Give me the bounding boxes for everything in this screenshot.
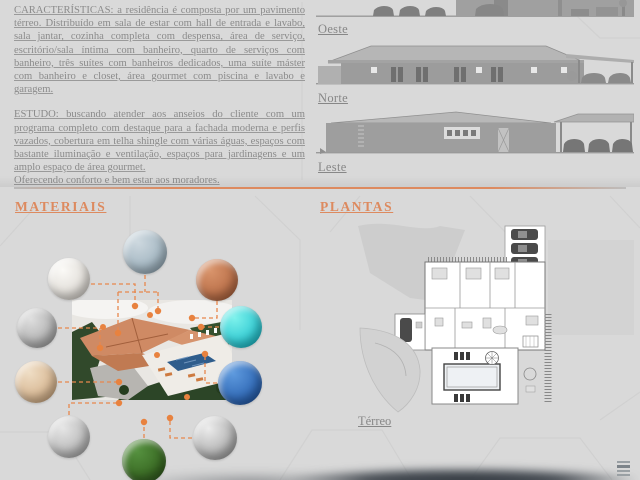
corner-mark-icon [617,459,630,476]
swatch-brushed-metal [193,416,237,460]
elevation-norte-drawing [316,40,634,90]
plans-section-title: PLANTAS [320,199,393,215]
elevation-oeste-label: Oeste [318,22,348,37]
swatch-copper-shingles [196,259,238,301]
aerial-house-render [72,300,232,400]
estudo-paragraph: ESTUDO: buscando atender aos anseios do … [14,108,305,174]
swatch-blue-pool-tile [218,361,262,405]
bottom-image-shadow [288,467,638,480]
floor-plan-label: Térreo [358,414,391,429]
divider-shadow [0,176,640,187]
elevation-leste-drawing [316,110,634,159]
materials-section-title: MATERIAIS [15,199,106,215]
elevation-norte-label: Norte [318,91,348,106]
project-description: CARACTERÍSTICAS: a residência é composta… [14,4,305,188]
swatch-beige-travertine [15,361,57,403]
swatch-turquoise-water [220,306,262,348]
floor-plan-drawing [340,218,640,418]
elevation-leste-label: Leste [318,160,347,175]
swatch-gray-granite [17,308,57,348]
swatch-white-marble [48,258,90,300]
presentation-board: CARACTERÍSTICAS: a residência é composta… [0,0,640,480]
swatch-speckled-blue-stone [123,230,167,274]
section-divider [14,187,626,189]
elevation-oeste-drawing [316,0,634,21]
caracteristicas-paragraph: CARACTERÍSTICAS: a residência é composta… [14,4,305,96]
swatch-stone-pavers [48,416,90,458]
